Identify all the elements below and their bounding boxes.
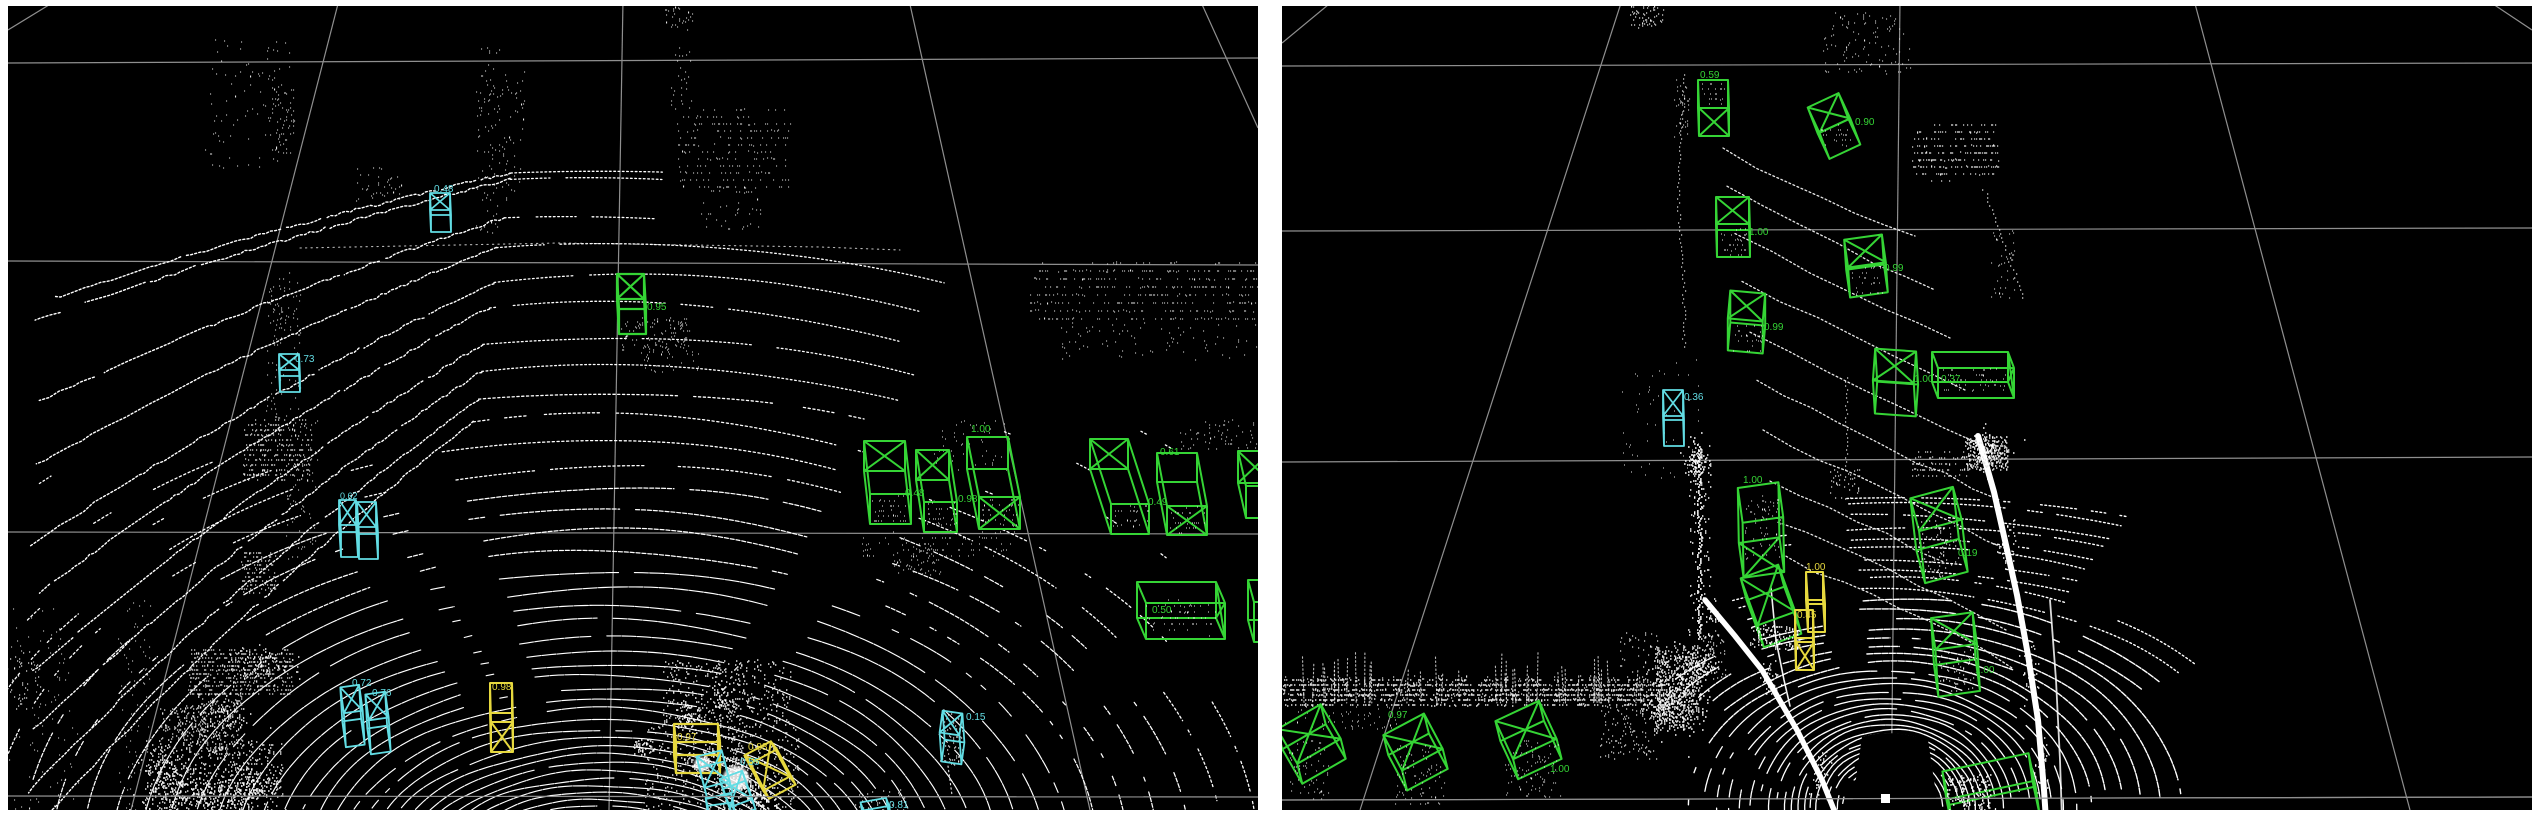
svg-text:0.76: 0.76: [372, 688, 392, 699]
svg-text:0.97: 0.97: [677, 732, 697, 743]
svg-text:1.00: 1.00: [1975, 665, 1995, 676]
svg-text:0.95: 0.95: [647, 302, 667, 313]
svg-text:0.49: 0.49: [1148, 497, 1168, 508]
svg-text:0.19: 0.19: [1958, 548, 1978, 559]
svg-text:1.00: 1.00: [1806, 562, 1826, 573]
svg-text:0.98: 0.98: [958, 494, 978, 505]
svg-text:1.00: 1.00: [1749, 227, 1769, 238]
svg-text:0.45: 0.45: [1797, 610, 1817, 621]
svg-text:0.88: 0.88: [748, 742, 768, 753]
svg-text:0.62: 0.62: [340, 491, 358, 501]
svg-text:0.15: 0.15: [966, 712, 986, 723]
svg-text:0.48: 0.48: [434, 184, 454, 195]
svg-text:0.81: 0.81: [889, 800, 909, 811]
svg-text:1.00: 1.00: [971, 424, 991, 435]
svg-text:0.36: 0.36: [1684, 392, 1704, 403]
svg-text:0.99: 0.99: [1884, 263, 1904, 274]
svg-text:0.59: 0.59: [1700, 70, 1720, 81]
svg-text:1.00: 1.00: [1743, 475, 1763, 486]
svg-text:0.55: 0.55: [740, 757, 760, 768]
svg-text:0.50: 0.50: [1152, 605, 1172, 616]
svg-text:0.61: 0.61: [1160, 447, 1180, 458]
svg-text:0.99: 0.99: [1764, 322, 1784, 333]
svg-text:0.37: 0.37: [1941, 374, 1961, 385]
svg-text:0.97: 0.97: [1388, 710, 1408, 721]
svg-text:0.90: 0.90: [1855, 117, 1875, 128]
svg-text:1.00: 1.00: [1550, 764, 1570, 775]
svg-text:0.98: 0.98: [492, 682, 512, 693]
svg-text:0.73: 0.73: [295, 354, 315, 365]
svg-text:1.00: 1.00: [1914, 374, 1934, 385]
svg-text:0.72: 0.72: [352, 678, 372, 689]
